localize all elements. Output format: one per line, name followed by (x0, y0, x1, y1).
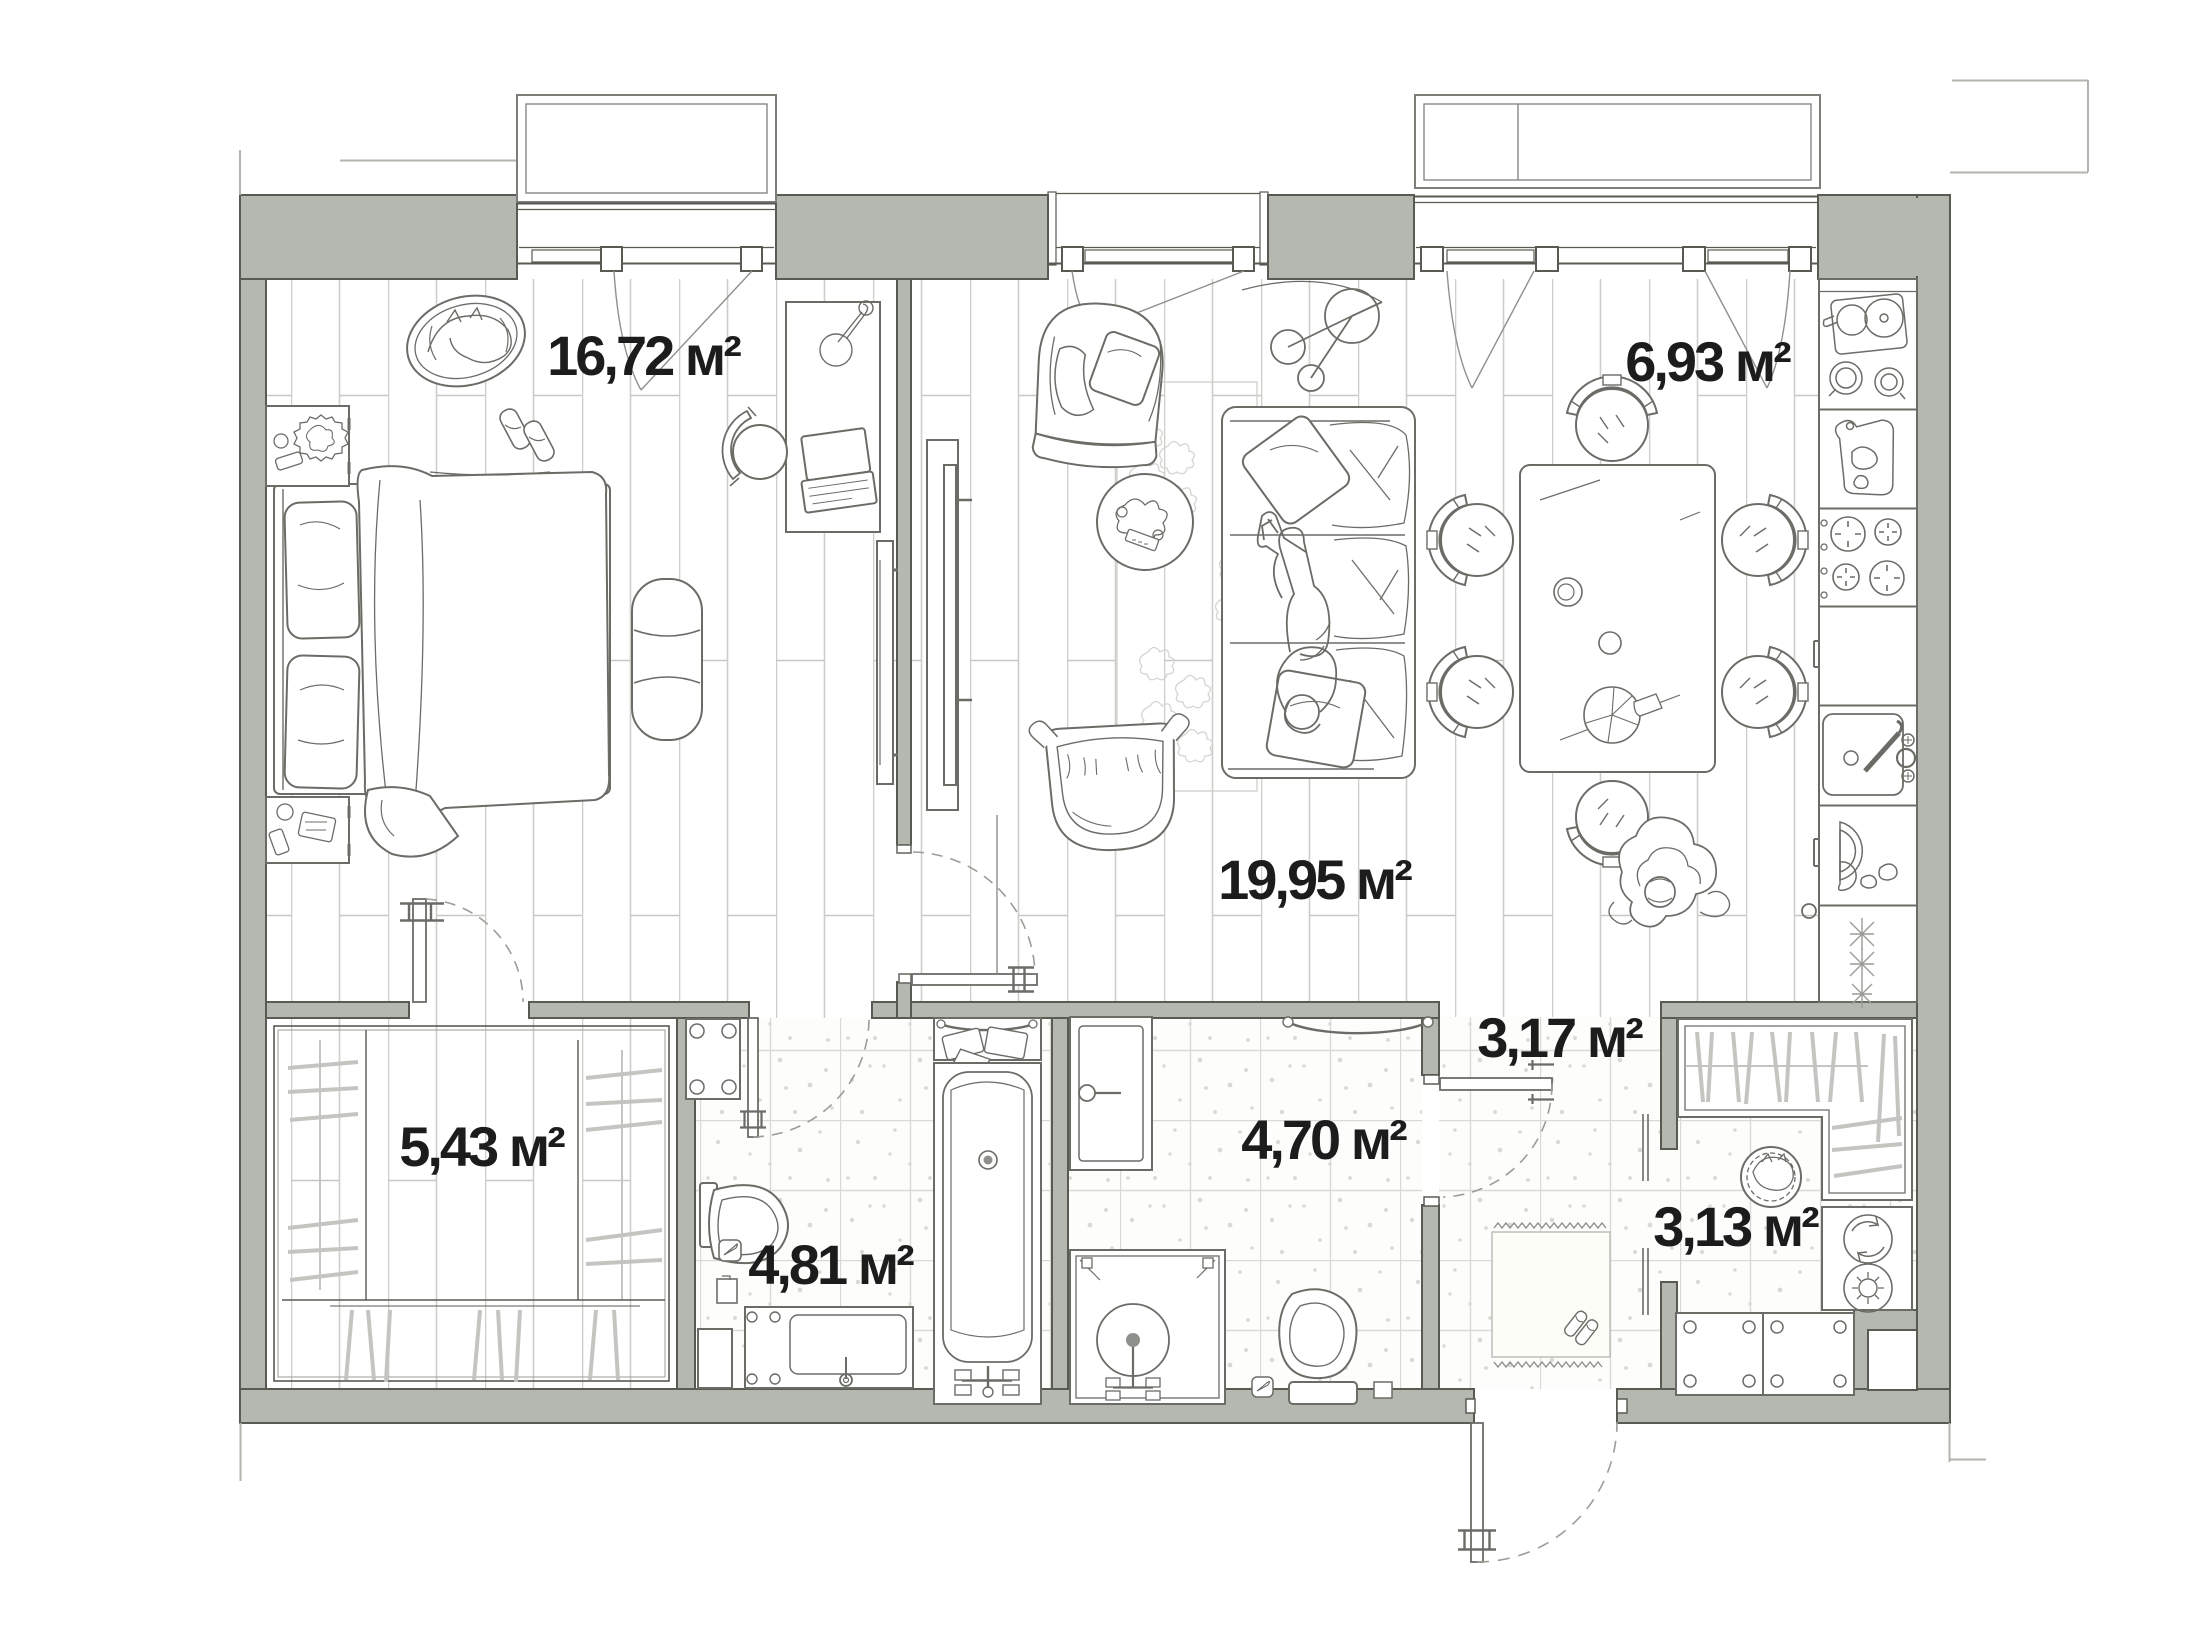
svg-text:4,81 м²: 4,81 м² (748, 1233, 914, 1296)
svg-text:4,70 м²: 4,70 м² (1241, 1108, 1407, 1171)
svg-text:3,13 м²: 3,13 м² (1653, 1195, 1819, 1258)
svg-text:19,95 м²: 19,95 м² (1218, 848, 1412, 911)
svg-text:6,93 м²: 6,93 м² (1625, 330, 1791, 393)
svg-text:3,17 м²: 3,17 м² (1477, 1006, 1643, 1069)
svg-text:5,43 м²: 5,43 м² (399, 1115, 565, 1178)
svg-text:16,72 м²: 16,72 м² (547, 324, 741, 387)
